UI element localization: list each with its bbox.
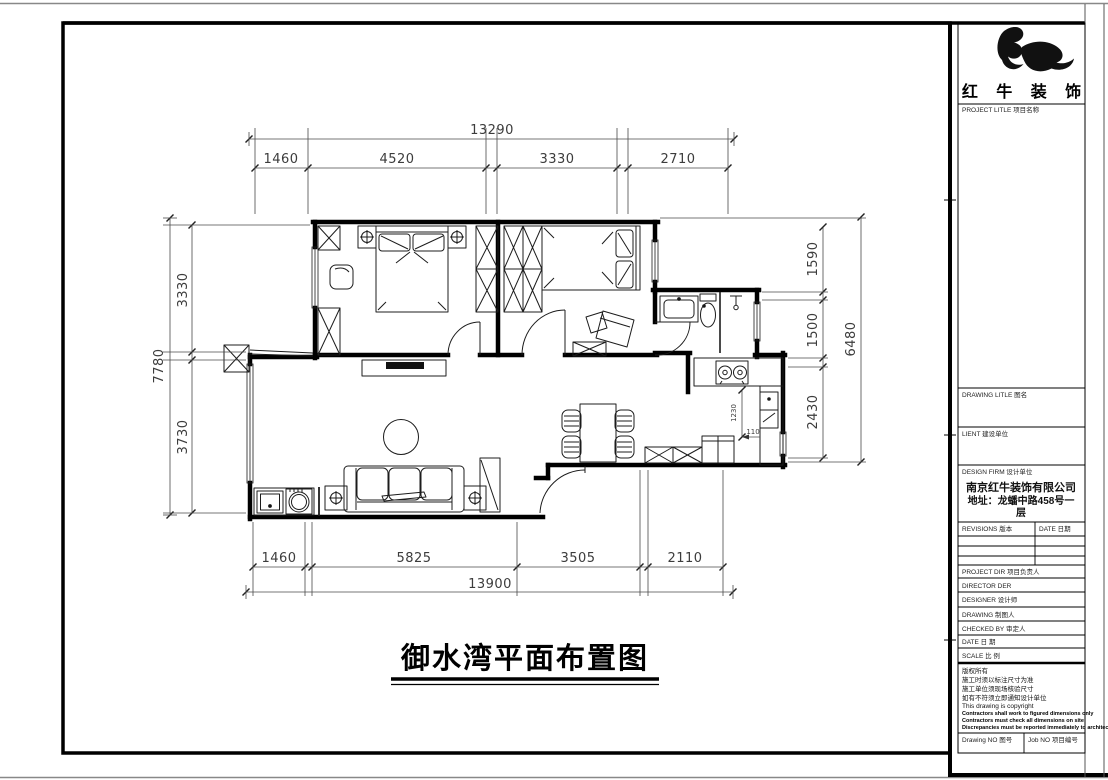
drawing-no-label: Drawing NO 图号 xyxy=(962,736,1013,744)
note-line: 版权所有 xyxy=(962,666,989,675)
dim-top-seg3: 2710 xyxy=(660,152,695,167)
sink xyxy=(660,296,698,322)
note-line: Discrepancies must be reported immediate… xyxy=(962,725,1108,731)
checked-label: CHECKED BY 审定人 xyxy=(962,624,1026,633)
window-bathroom-east xyxy=(754,302,760,341)
drawing-title-label: DRAWING LITLE 图名 xyxy=(962,390,1027,399)
dim-top-total: 13290 xyxy=(470,123,514,138)
kitchen-sink xyxy=(760,392,778,428)
dining-table xyxy=(580,404,616,462)
company-name-cn: 红 牛 装 饰 xyxy=(962,82,1088,101)
scale-label: SCALE 比 例 xyxy=(962,651,1000,660)
door-bathroom xyxy=(655,322,690,355)
director-label: DIRECTOR DER xyxy=(962,583,1012,590)
note-line: 如有不符须立即通知设计单位 xyxy=(962,693,1047,702)
sofa xyxy=(344,466,464,512)
dim-right-seg1: 1500 xyxy=(806,312,821,347)
note-line: Contractors must check all dimensions on… xyxy=(962,718,1084,724)
window-living-west xyxy=(247,364,253,483)
dim-top-seg2: 3330 xyxy=(539,152,574,167)
walls xyxy=(250,222,785,519)
dim-left-total: 7780 xyxy=(152,348,167,383)
dining-chair xyxy=(615,436,634,458)
dim-left-seg0: 3330 xyxy=(176,272,191,307)
toilet xyxy=(700,294,716,327)
drawing-label: DRAWING 制图人 xyxy=(962,610,1015,619)
window-bedroom1-west xyxy=(312,247,318,308)
windows xyxy=(247,240,786,483)
dim-left: 7780 3330 3730 xyxy=(152,215,310,519)
revisions-label: REVISIONS 版本 xyxy=(962,524,1013,533)
copyright-notes: 版权所有 施工时须以标注尺寸为准 施工单位须现场核验尺寸 如有不符须立即通知设计… xyxy=(962,666,1108,731)
coffee-table xyxy=(384,420,419,455)
client-label: LIENT 建设单位 xyxy=(962,429,1009,438)
double-bed xyxy=(376,226,448,312)
dim-offset-110: 110 xyxy=(746,428,759,436)
dim-right-seg2: 2430 xyxy=(806,394,821,429)
dim-left-seg1: 3730 xyxy=(176,419,191,454)
dim-bottom-seg3: 2110 xyxy=(667,551,702,566)
drawing-title: 御水湾平面布置图 xyxy=(391,641,659,685)
note-line: 施工单位须现场核验尺寸 xyxy=(962,684,1034,693)
wardrobe xyxy=(318,308,340,355)
dim-bottom-total: 13900 xyxy=(468,577,512,592)
dim-counter-1230: 1230 xyxy=(730,404,738,422)
laundry-area xyxy=(254,488,314,515)
door-bedroom1 xyxy=(448,322,480,355)
floorplan-canvas: 13290 1460 4520 3330 2710 1460 5825 35 xyxy=(0,0,1108,780)
side-table-lamp xyxy=(464,486,486,510)
title-block: 红 牛 装 饰 PROJECT LITLE 项目名称 DRAWING LITLE… xyxy=(958,23,1108,753)
dim-bottom-seg2: 3505 xyxy=(560,551,595,566)
chair xyxy=(330,265,353,289)
doors xyxy=(448,310,690,513)
design-firm-addr1: 地址：龙蟠中路458号一 xyxy=(968,494,1075,507)
dining-chair xyxy=(562,436,581,458)
note-line: Contractors shall work to figured dimens… xyxy=(962,711,1094,717)
dim-top: 13290 1460 4520 3330 2710 xyxy=(246,123,738,214)
dim-bottom-seg0: 1460 xyxy=(261,551,296,566)
bedroom2-furniture xyxy=(504,226,640,356)
dining-chair xyxy=(615,410,634,432)
nightstand-lamp xyxy=(358,226,376,248)
dim-top-seg0: 1460 xyxy=(263,152,298,167)
shower-head xyxy=(730,296,742,310)
dim-top-seg1: 4520 xyxy=(379,152,414,167)
dim-right-total: 6480 xyxy=(844,321,859,356)
dining-chair xyxy=(562,410,581,432)
project-title-label: PROJECT LITLE 项目名称 xyxy=(962,105,1040,114)
wardrobe xyxy=(476,226,498,312)
dim-interior: 1230 110 xyxy=(730,387,760,441)
display-shelf xyxy=(480,458,500,512)
date2-label: DATE 日 期 xyxy=(962,638,996,646)
project-dir-label: PROJECT DIR 项目负责人 xyxy=(962,567,1040,576)
shoe-cabinet xyxy=(645,447,702,463)
single-bed xyxy=(542,226,640,290)
dim-bottom-seg1: 5825 xyxy=(396,551,431,566)
window-bedroom2-east xyxy=(652,240,658,282)
dining xyxy=(562,404,634,462)
nightstand-lamp xyxy=(448,226,466,248)
wardrobe xyxy=(504,226,542,312)
design-firm-name: 南京红牛装饰有限公司 xyxy=(966,480,1076,494)
bull-logo-icon xyxy=(997,27,1074,71)
design-firm-label: DESIGN FIRM 设计单位 xyxy=(962,467,1033,476)
living-room xyxy=(224,345,500,516)
date-label: DATE 日期 xyxy=(1039,525,1071,533)
design-firm-addr2: 层 xyxy=(1016,507,1026,519)
designer-label: DESIGNER 设计师 xyxy=(962,595,1018,604)
kitchen xyxy=(645,358,783,465)
drawing-sheet: 13290 1460 4520 3330 2710 1460 5825 35 xyxy=(0,0,1108,780)
drawing-title-text: 御水湾平面布置图 xyxy=(400,641,649,675)
door-bedroom2 xyxy=(522,310,565,355)
tv-cabinet xyxy=(362,360,446,376)
refrigerator xyxy=(702,436,734,463)
dim-bottom: 1460 5825 3505 2110 13900 xyxy=(243,470,737,599)
note-line: 施工时须以标注尺寸为准 xyxy=(962,675,1034,684)
job-no-label: Job NO 项目编号 xyxy=(1028,735,1078,744)
company-logo: 红 牛 装 饰 xyxy=(962,27,1088,101)
bedroom1-furniture xyxy=(318,226,498,355)
wardrobe xyxy=(318,226,340,250)
stove xyxy=(716,361,748,384)
dim-right-seg0: 1590 xyxy=(806,241,821,276)
note-line: This drawing is copyright xyxy=(962,703,1034,710)
chair xyxy=(586,312,607,333)
bathroom-fixtures xyxy=(660,292,742,353)
